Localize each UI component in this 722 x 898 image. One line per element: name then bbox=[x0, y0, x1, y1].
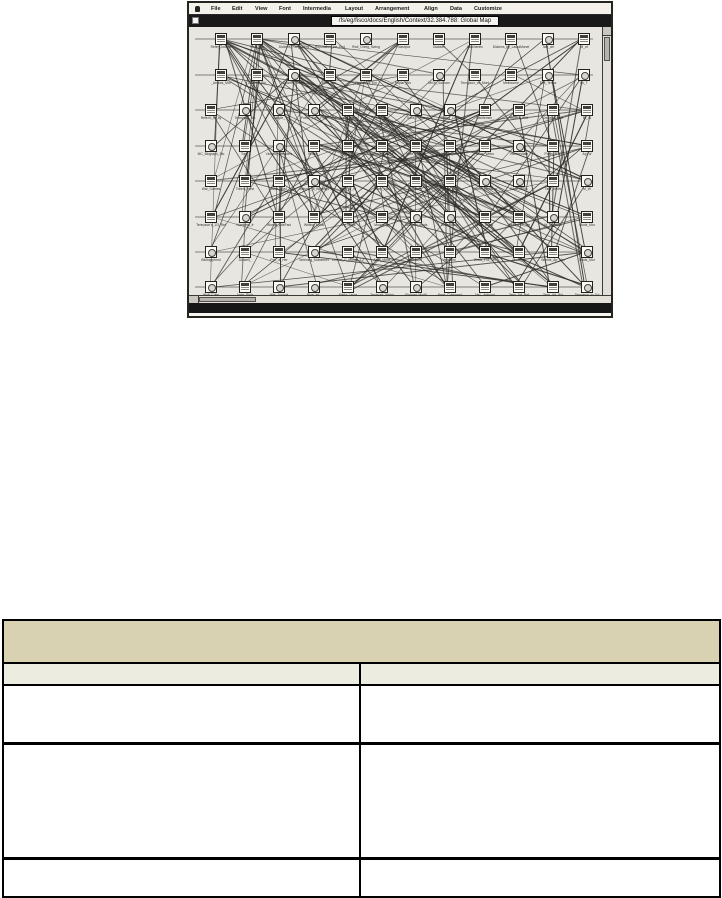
document-icon[interactable]: Church_of_Em bbox=[360, 69, 372, 81]
icon-label: Butcheries bbox=[467, 46, 483, 49]
document-icon[interactable]: Worlds_Ap_Mor bbox=[547, 246, 559, 258]
disc-glyph-icon bbox=[447, 214, 455, 222]
table-column-header-row bbox=[4, 664, 719, 686]
document-icon[interactable]: Tale_arl bbox=[542, 33, 554, 45]
icon-label: Tennyson_to_Ed bbox=[575, 294, 600, 295]
menu-item-edit[interactable]: Edit bbox=[232, 6, 242, 12]
document-icon[interactable]: Apes_Picts bbox=[239, 281, 251, 293]
disc-glyph-icon bbox=[291, 36, 299, 44]
doc-glyph-icon bbox=[378, 248, 386, 256]
doc-glyph-icon bbox=[481, 142, 489, 150]
doc-glyph-icon bbox=[507, 71, 515, 79]
disc-glyph-icon bbox=[436, 72, 444, 80]
document-icon[interactable]: Treasure_Webd bbox=[376, 281, 388, 293]
disc-glyph-icon bbox=[208, 284, 216, 292]
disc-glyph-icon bbox=[584, 178, 592, 186]
doc-glyph-icon bbox=[207, 106, 215, 114]
doc-glyph-icon bbox=[481, 106, 489, 114]
doc-glyph-icon bbox=[446, 283, 454, 291]
icon-label: Dickens_Debts bbox=[283, 82, 305, 85]
doc-glyph-icon bbox=[310, 142, 318, 150]
disc-glyph-icon bbox=[363, 36, 371, 44]
document-icon[interactable]: Gentlemen_ bbox=[479, 104, 491, 116]
disc-glyph-icon bbox=[584, 284, 592, 292]
document-icon[interactable]: Wrlds_Full_Ver bbox=[479, 246, 491, 258]
icon-label: Poe_is_Her bbox=[270, 259, 287, 262]
doc-glyph-icon bbox=[446, 142, 454, 150]
icon-label: Refer_Journal bbox=[211, 46, 232, 49]
doc-glyph-icon bbox=[241, 283, 249, 291]
menu-item-font[interactable]: Font bbox=[279, 6, 291, 12]
icon-label: Tennyson_vs_Mont bbox=[461, 82, 489, 85]
icon-label: Mods_Mor bbox=[579, 259, 595, 262]
document-icon[interactable]: Beck_Mods bbox=[513, 175, 525, 187]
doc-glyph-icon bbox=[241, 142, 249, 150]
doc-glyph-icon bbox=[378, 177, 386, 185]
doc-glyph-icon bbox=[481, 248, 489, 256]
icon-label: Poet_Lovers bbox=[339, 117, 358, 120]
document-icon[interactable]: Tenn_Lwr bbox=[376, 175, 388, 187]
menu-item-file[interactable]: File bbox=[211, 6, 221, 12]
disc-glyph-icon bbox=[379, 284, 387, 292]
document-icon[interactable]: MC_Biograph_Bio bbox=[205, 140, 217, 152]
icon-label: Nectrn_Mod bbox=[441, 188, 459, 191]
icon-label: Beer_Mar_ bbox=[322, 82, 338, 85]
icon-label: Dickens_Bio bbox=[248, 82, 266, 85]
document-icon[interactable]: _Arrows_Mor bbox=[215, 69, 227, 81]
window-bottom-edge bbox=[189, 303, 611, 313]
icon-label: Writing_Mods bbox=[304, 224, 324, 227]
icon-label: Maria_Laura bbox=[339, 294, 358, 295]
icon-label: Blue_art_ bbox=[307, 294, 321, 295]
document-icon[interactable]: Websters_ bbox=[410, 175, 422, 187]
doc-glyph-icon bbox=[471, 35, 479, 43]
document-icon[interactable]: Writming_Mdbstreet bbox=[308, 246, 320, 258]
disc-glyph-icon bbox=[311, 284, 319, 292]
icon-label: Writming_Mdbstreet bbox=[299, 259, 328, 262]
doc-glyph-icon bbox=[515, 283, 523, 291]
document-icon[interactable]: Melbourne bbox=[505, 69, 517, 81]
doc-glyph-icon bbox=[344, 142, 352, 150]
document-icon[interactable]: Mich_of_W bbox=[342, 175, 354, 187]
table-row bbox=[4, 860, 719, 896]
icon-label: Refer'd_to_by bbox=[201, 117, 221, 120]
document-icon[interactable]: War_Games bbox=[205, 175, 217, 187]
document-icon[interactable]: Mich_Selv bbox=[342, 140, 354, 152]
table-cell bbox=[4, 745, 361, 857]
icon-label: Stylers_Wrlt bbox=[510, 117, 528, 120]
doc-glyph-icon bbox=[399, 35, 407, 43]
vertical-scrollbar-thumb[interactable] bbox=[604, 37, 610, 61]
icon-label: Beck_Mods bbox=[510, 188, 527, 191]
document-icon[interactable]: Bibliogrphmd bbox=[205, 246, 217, 258]
icon-label: Poetic_Free_Poet bbox=[301, 117, 327, 120]
document-icon[interactable]: Mourning_Beck bbox=[376, 140, 388, 152]
document-icon[interactable]: Mods_Mor bbox=[581, 211, 593, 223]
document-icon[interactable]: Tale_Webs bbox=[547, 175, 559, 187]
icon-label: Durwell_ bbox=[239, 259, 252, 262]
doc-glyph-icon bbox=[399, 71, 407, 79]
icon-label: Beas_Cubsword bbox=[438, 294, 462, 295]
icon-label: Sw'ft_Bio bbox=[250, 46, 264, 49]
icon-label: Dissr_Webs bbox=[476, 153, 494, 156]
icon-label: Church_of_Em bbox=[355, 82, 377, 85]
icon-label: Tale_Webs bbox=[545, 188, 561, 191]
disc-glyph-icon bbox=[550, 214, 558, 222]
document-icon[interactable]: Websters_ bbox=[410, 246, 422, 258]
document-icon[interactable]: Dickens_Bio bbox=[251, 69, 263, 81]
doc-glyph-icon bbox=[326, 35, 334, 43]
icon-label: Tenn_Lwr bbox=[375, 188, 389, 191]
disc-glyph-icon bbox=[584, 249, 592, 257]
icon-label: Tory_ bbox=[241, 153, 249, 156]
document-icon[interactable]: W_in_Mods bbox=[547, 211, 559, 223]
table-cell bbox=[361, 686, 719, 742]
icon-label: Im_T bbox=[580, 82, 588, 85]
document-icon[interactable]: Wks_Mods bbox=[479, 211, 491, 223]
table-row bbox=[4, 745, 719, 860]
document-icon[interactable]: Alice_Novl bbox=[273, 175, 285, 187]
disc-glyph-icon bbox=[276, 284, 284, 292]
doc-glyph-icon bbox=[507, 35, 515, 43]
icon-label: Wrlds_Full_Ver bbox=[474, 259, 496, 262]
doc-glyph-icon bbox=[207, 213, 215, 221]
menu-item-arrangement[interactable]: Arrangement bbox=[375, 6, 409, 12]
document-icon[interactable]: MsL_Artword bbox=[479, 281, 491, 293]
table-row bbox=[4, 686, 719, 745]
icon-label: Br_W bbox=[583, 117, 591, 120]
disc-glyph-icon bbox=[447, 107, 455, 115]
icon-label: Tens_Art_Ref bbox=[509, 294, 529, 295]
icon-label: Dialdom bbox=[433, 46, 445, 49]
doc-glyph-icon bbox=[446, 248, 454, 256]
document-icon[interactable]: Sons_Poem bbox=[410, 104, 422, 116]
doc-glyph-icon bbox=[412, 142, 420, 150]
map-area: Refer_JournalSw'ft_BioDickens_Fairy_TlPt… bbox=[189, 27, 611, 295]
document-icon[interactable]: Webs_Full_Ver bbox=[513, 211, 525, 223]
disc-glyph-icon bbox=[208, 143, 216, 151]
disc-glyph-icon bbox=[242, 214, 250, 222]
icon-label: MC_Biograph_Bio bbox=[198, 153, 225, 156]
document-icon[interactable]: Tollers_Nest bbox=[239, 175, 251, 187]
menu-items: FileEditViewFontIntermediaLayoutArrangem… bbox=[211, 6, 504, 12]
disc-glyph-icon bbox=[291, 72, 299, 80]
apple-menu-icon[interactable] bbox=[195, 6, 200, 12]
document-icon[interactable]: Stylers_Wrlt bbox=[513, 104, 525, 116]
document-icon[interactable]: T'dashpot bbox=[397, 33, 409, 45]
document-icon[interactable]: War_Journal bbox=[273, 281, 285, 293]
doc-glyph-icon bbox=[378, 106, 386, 114]
document-icon[interactable]: Wilson_Mdl bbox=[444, 140, 456, 152]
doc-glyph-icon bbox=[344, 248, 352, 256]
disc-glyph-icon bbox=[311, 107, 319, 115]
document-icon[interactable]: Beer_Mar_ bbox=[324, 69, 336, 81]
icon-label: T'dashpot bbox=[396, 46, 410, 49]
icon-label: _Arrows_Mor bbox=[211, 82, 231, 85]
doc-glyph-icon bbox=[549, 177, 557, 185]
document-icon[interactable]: Verbatim_ bbox=[444, 246, 456, 258]
disc-glyph-icon bbox=[276, 107, 284, 115]
doc-glyph-icon bbox=[446, 177, 454, 185]
document-icon[interactable]: Sw'ft_Bio bbox=[251, 33, 263, 45]
icon-label: Apes_Picts bbox=[237, 294, 254, 295]
doc-glyph-icon bbox=[549, 106, 557, 114]
doc-glyph-icon bbox=[549, 283, 557, 291]
document-icon[interactable]: Refer_Journal bbox=[215, 33, 227, 45]
icon-label: Worlds_Ap_Mor bbox=[541, 259, 565, 262]
document-icon[interactable]: Durwell_ bbox=[239, 246, 251, 258]
doc-glyph-icon bbox=[275, 213, 283, 221]
document-icon[interactable]: Dissr_Webs bbox=[479, 140, 491, 152]
document-icon[interactable]: Victoria_Websters bbox=[273, 140, 285, 152]
icon-label: Rwil_Chmg_Swing bbox=[352, 46, 380, 49]
disc-glyph-icon bbox=[482, 178, 490, 186]
icon-label: Wilson_Mdl bbox=[441, 153, 458, 156]
column-header-right bbox=[361, 664, 719, 684]
document-icon[interactable]: Tennyson_vs_Mont bbox=[469, 69, 481, 81]
icon-label: Dickens_Und bbox=[543, 117, 563, 120]
document-icon[interactable]: Rwil_Chmg_Swing bbox=[360, 33, 372, 45]
icon-label: M_of bbox=[580, 46, 587, 49]
scroll-left-arrow-icon[interactable] bbox=[189, 296, 199, 303]
icon-label: Victoria_of_Beckngs bbox=[299, 188, 329, 191]
document-icon[interactable]: Nectrn_Mod bbox=[444, 175, 456, 187]
doc-glyph-icon bbox=[362, 71, 370, 79]
document-icon[interactable]: Br_W bbox=[581, 104, 593, 116]
document-icon[interactable]: Arg_Mods bbox=[342, 211, 354, 223]
icon-label: Mich_Selv bbox=[340, 153, 355, 156]
intermedia-window: FileEditViewFontIntermediaLayoutArrangem… bbox=[189, 3, 611, 313]
document-icon[interactable]: Elem_Mods bbox=[444, 211, 456, 223]
table-cell bbox=[361, 745, 719, 857]
document-icon[interactable]: Poetic_Free_Poet bbox=[308, 104, 320, 116]
document-icon[interactable]: Dickens_Und bbox=[547, 104, 559, 116]
document-icon[interactable]: Brown_ bbox=[308, 140, 320, 152]
icon-label: Intermediate bbox=[510, 153, 528, 156]
document-icon[interactable]: Im_T bbox=[578, 69, 590, 81]
document-icon[interactable]: Writing_Mods bbox=[308, 211, 320, 223]
document-icon[interactable]: MrCh_Sullivan bbox=[433, 69, 445, 81]
document-icon[interactable]: Carlyle_ bbox=[273, 104, 285, 116]
document-icon[interactable]: Mods_W bbox=[513, 246, 525, 258]
icon-label: Cricket_C_Monet_1.2 bbox=[332, 259, 364, 262]
document-icon[interactable]: Rome_Verbatim bbox=[479, 175, 491, 187]
window-title-bar: /fs/eg/fisco/docs/English/Context/32.384… bbox=[189, 15, 611, 27]
disc-glyph-icon bbox=[516, 143, 524, 151]
table-cell bbox=[4, 860, 361, 896]
icon-label: Mourning_Beck bbox=[371, 153, 394, 156]
document-icon[interactable]: Elm_Terms bbox=[542, 69, 554, 81]
doc-glyph-icon bbox=[515, 248, 523, 256]
doc-glyph-icon bbox=[253, 35, 261, 43]
icon-label: Tennyson's_1/3_Ref bbox=[196, 224, 226, 227]
document-icon[interactable]: Dickens_Fairy_TlPts bbox=[288, 33, 300, 45]
document-icon[interactable]: Richard_Mod8 bbox=[410, 281, 422, 293]
icon-label: Webs_Full_Ver bbox=[508, 224, 530, 227]
document-icon[interactable]: Dickens_by_LauraMonet bbox=[505, 33, 517, 45]
icon-label: Mourning_ bbox=[374, 224, 390, 227]
icon-label: Dickens_by_LauraMonet bbox=[493, 46, 530, 49]
doc-glyph-icon bbox=[580, 35, 588, 43]
icon-label: M_W bbox=[583, 188, 591, 191]
icon-label: Arab_Mods bbox=[374, 259, 391, 262]
table-cell bbox=[361, 860, 719, 896]
icon-label: Worlds_adeFact bbox=[267, 224, 291, 227]
disc-glyph-icon bbox=[413, 107, 421, 115]
menu-item-view[interactable]: View bbox=[255, 6, 267, 12]
icon-label: Bibliogrphmd bbox=[201, 259, 220, 262]
icon-label: Sons_Poem bbox=[407, 117, 425, 120]
icon-label: Tess_Av bbox=[376, 117, 388, 120]
icon-label: MrCh_Sullivan bbox=[428, 82, 449, 85]
doc-glyph-icon bbox=[344, 177, 352, 185]
document-icon[interactable]: Styling_Crbtn bbox=[444, 104, 456, 116]
icon-label: Tollers_Nest bbox=[236, 188, 254, 191]
icon-label: Mike_Webstr bbox=[406, 153, 425, 156]
doc-glyph-icon bbox=[471, 71, 479, 79]
icon-label: Websters_ bbox=[408, 188, 424, 191]
document-icon[interactable]: Tory_ bbox=[239, 140, 251, 152]
disc-glyph-icon bbox=[413, 214, 421, 222]
scroll-up-arrow-icon[interactable] bbox=[603, 27, 611, 36]
icon-label: MsL_Artword bbox=[475, 294, 494, 295]
table-cell bbox=[4, 686, 361, 742]
menu-item-layout[interactable]: Layout bbox=[345, 6, 363, 12]
icon-label: Mich_of_W bbox=[340, 188, 357, 191]
document-icon[interactable]: Tens_Art_Ref bbox=[513, 281, 525, 293]
icon-label: Styling_Crbtn bbox=[440, 117, 460, 120]
document-icon[interactable]: Mods_Mor bbox=[581, 246, 593, 258]
icon-label: Ap_W bbox=[583, 153, 592, 156]
document-icon[interactable]: Poplar_Bio bbox=[397, 69, 409, 81]
menu-item-customize[interactable]: Customize bbox=[474, 6, 502, 12]
document-icon[interactable]: Dialdom bbox=[433, 33, 445, 45]
document-icon[interactable]: Intermediate bbox=[513, 140, 525, 152]
icon-label: Tale_arl bbox=[542, 46, 554, 49]
icon-label: Tennyson_Bib bbox=[235, 117, 256, 120]
document-icon[interactable]: Butcheries bbox=[469, 33, 481, 45]
document-icon[interactable]: Mourning_ bbox=[376, 211, 388, 223]
disc-glyph-icon bbox=[413, 284, 421, 292]
disc-glyph-icon bbox=[581, 72, 589, 80]
doc-glyph-icon bbox=[241, 248, 249, 256]
document-icon[interactable]: Poet_Lovers bbox=[342, 104, 354, 116]
doc-glyph-icon bbox=[378, 142, 386, 150]
doc-glyph-icon bbox=[583, 213, 591, 221]
document-icon[interactable]: Victoria_of_Beckngs bbox=[308, 175, 320, 187]
document-icon[interactable]: Arab_Mods bbox=[376, 246, 388, 258]
document-icon[interactable]: Reputation_the_End bbox=[324, 33, 336, 45]
icon-label: Richard_Mod8 bbox=[405, 294, 426, 295]
doc-glyph-icon bbox=[412, 177, 420, 185]
icon-label: Victoria_Websters bbox=[266, 153, 293, 156]
icon-label: Wks_Mods bbox=[477, 224, 493, 227]
disc-glyph-icon bbox=[276, 143, 284, 151]
icon-label: Elem_Mods bbox=[441, 224, 458, 227]
doc-glyph-icon bbox=[344, 213, 352, 221]
horizontal-scrollbar-thumb[interactable] bbox=[199, 297, 256, 302]
document-icon[interactable]: Blue_art_ bbox=[308, 281, 320, 293]
document-icon[interactable]: Beas_Cubsword bbox=[444, 281, 456, 293]
icon-label: Verbatim_ bbox=[443, 259, 458, 262]
document-icon[interactable]: Tennyson_to_Ed bbox=[581, 281, 593, 293]
doc-glyph-icon bbox=[412, 248, 420, 256]
icon-label: Mods_Mor bbox=[579, 224, 595, 227]
icon-label: Partls_RTC bbox=[545, 153, 562, 156]
document-icon[interactable]: Cricket_C_Monet_1.2 bbox=[342, 246, 354, 258]
doc-glyph-icon bbox=[583, 106, 591, 114]
icon-label: Wolf_Cubs bbox=[203, 294, 219, 295]
doc-glyph-icon bbox=[241, 177, 249, 185]
doc-glyph-icon bbox=[344, 106, 352, 114]
disc-glyph-icon bbox=[311, 178, 319, 186]
doc-glyph-icon bbox=[378, 213, 386, 221]
document-icon[interactable]: Tale_law_Mods bbox=[410, 211, 422, 223]
doc-glyph-icon bbox=[549, 248, 557, 256]
icon-label: Gentlemen_ bbox=[476, 117, 494, 120]
doc-glyph-icon bbox=[583, 142, 591, 150]
icon-label: War_Games bbox=[202, 188, 220, 191]
document-icon[interactable]: Tess_Av bbox=[376, 104, 388, 116]
doc-glyph-icon bbox=[275, 177, 283, 185]
document-icon[interactable]: Tenn_Art_Wd bbox=[547, 281, 559, 293]
document-icon[interactable]: Poe_is_Her bbox=[273, 246, 285, 258]
global-map-figure: FileEditViewFontIntermediaLayoutArrangem… bbox=[187, 1, 613, 318]
doc-glyph-icon bbox=[217, 71, 225, 79]
icon-label: Alice_Novl bbox=[271, 188, 287, 191]
icon-label: Treasure_Webd bbox=[370, 294, 393, 295]
menu-item-intermedia[interactable]: Intermedia bbox=[303, 6, 331, 12]
document-path: /fs/eg/fisco/docs/English/Context/32.384… bbox=[331, 16, 499, 26]
vertical-scrollbar[interactable] bbox=[602, 27, 611, 295]
icon-label: Melbourne bbox=[503, 82, 519, 85]
doc-glyph-icon bbox=[310, 213, 318, 221]
menu-item-data[interactable]: Data bbox=[450, 6, 462, 12]
document-icon[interactable]: Maria_Laura bbox=[342, 281, 354, 293]
document-icon[interactable]: Partls_RTC bbox=[547, 140, 559, 152]
disc-glyph-icon bbox=[545, 36, 553, 44]
icon-label: War_Journal bbox=[270, 294, 289, 295]
icon-label: Tale_law_Mods bbox=[405, 224, 428, 227]
horizontal-scrollbar[interactable] bbox=[189, 295, 611, 303]
column-header-left bbox=[4, 664, 361, 684]
icon-label: Websters_ bbox=[408, 259, 424, 262]
doc-glyph-icon bbox=[515, 213, 523, 221]
document-icon[interactable]: M_W bbox=[581, 175, 593, 187]
document-icon[interactable]: Mike_Webstr bbox=[410, 140, 422, 152]
document-icon[interactable]: Worlds_adeFact bbox=[273, 211, 285, 223]
doc-glyph-icon bbox=[344, 283, 352, 291]
doc-glyph-icon bbox=[326, 71, 334, 79]
close-box[interactable] bbox=[192, 17, 199, 24]
disc-glyph-icon bbox=[516, 178, 524, 186]
doc-glyph-icon bbox=[481, 283, 489, 291]
icon-label: Brown_ bbox=[308, 153, 319, 156]
document-icon[interactable]: Refer'd_to_by bbox=[205, 104, 217, 116]
doc-glyph-icon bbox=[253, 71, 261, 79]
document-icon[interactable]: Tennyson_Bib bbox=[239, 104, 251, 116]
document-icon[interactable]: Dickens_Debts bbox=[288, 69, 300, 81]
icon-label: Numbers_fr bbox=[236, 224, 253, 227]
document-icon[interactable]: Tennyson's_1/3_Ref bbox=[205, 211, 217, 223]
doc-glyph-icon bbox=[275, 248, 283, 256]
document-icon[interactable]: Wolf_Cubs bbox=[205, 281, 217, 293]
menu-item-align[interactable]: Align bbox=[424, 6, 438, 12]
doc-glyph-icon bbox=[435, 35, 443, 43]
document-icon[interactable]: M_of bbox=[578, 33, 590, 45]
document-icon[interactable]: Numbers_fr bbox=[239, 211, 251, 223]
document-icon[interactable]: Ap_W bbox=[581, 140, 593, 152]
